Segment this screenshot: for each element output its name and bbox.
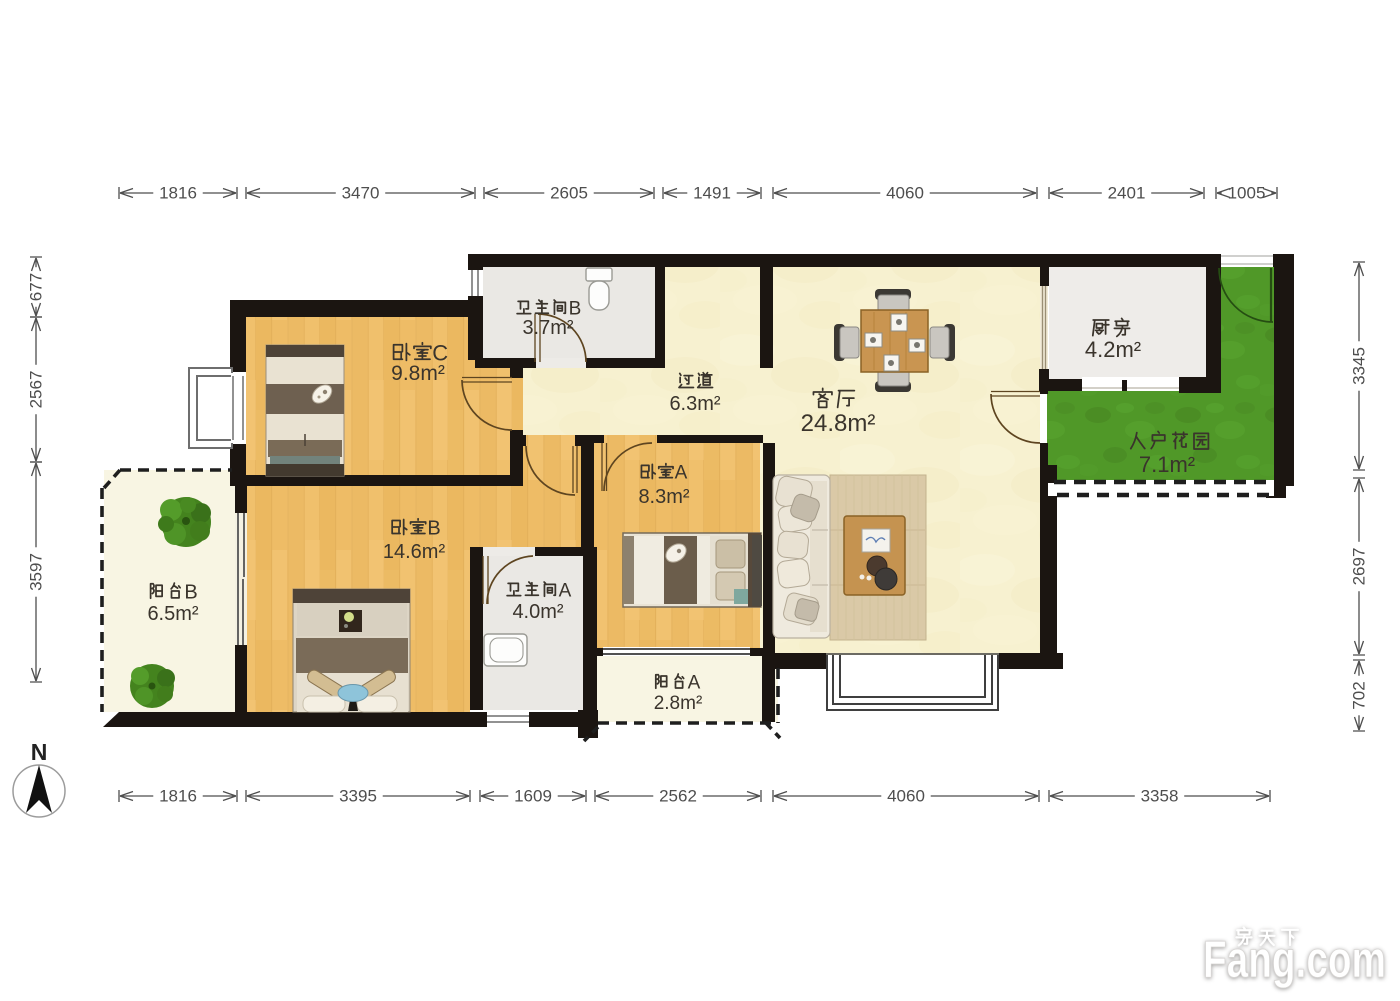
svg-text:3358: 3358	[1141, 787, 1179, 806]
svg-text:6.3m²: 6.3m²	[669, 393, 720, 415]
svg-text:702: 702	[1350, 681, 1369, 709]
svg-text:Fang.com: Fang.com	[1203, 931, 1386, 989]
svg-text:2.8m²: 2.8m²	[654, 693, 703, 714]
svg-text:A: A	[688, 673, 701, 694]
svg-text:A: A	[559, 581, 572, 602]
svg-text:8.3m²: 8.3m²	[638, 486, 689, 508]
svg-text:6.5m²: 6.5m²	[147, 603, 198, 625]
svg-text:4.2m²: 4.2m²	[1085, 337, 1141, 362]
svg-text:677: 677	[27, 273, 46, 301]
svg-text:3.7m²: 3.7m²	[522, 317, 573, 339]
svg-text:2562: 2562	[659, 787, 697, 806]
svg-text:1491: 1491	[693, 184, 731, 203]
svg-text:1816: 1816	[159, 184, 197, 203]
svg-text:B: B	[184, 582, 197, 604]
svg-text:3395: 3395	[339, 787, 377, 806]
svg-text:14.6m²: 14.6m²	[383, 541, 446, 563]
svg-text:7.1m²: 7.1m²	[1139, 452, 1195, 477]
svg-text:4060: 4060	[886, 184, 924, 203]
svg-text:3345: 3345	[1350, 347, 1369, 385]
svg-text:1609: 1609	[514, 787, 552, 806]
svg-text:N: N	[31, 739, 48, 765]
svg-text:4060: 4060	[887, 787, 925, 806]
svg-text:1816: 1816	[159, 787, 197, 806]
svg-text:4.0m²: 4.0m²	[512, 601, 563, 623]
svg-text:A: A	[675, 463, 688, 484]
svg-text:2567: 2567	[27, 371, 46, 409]
svg-text:24.8m²: 24.8m²	[801, 410, 876, 437]
svg-text:1005: 1005	[1228, 184, 1266, 203]
svg-text:3470: 3470	[342, 184, 380, 203]
svg-text:B: B	[427, 518, 440, 540]
svg-text:2605: 2605	[550, 184, 588, 203]
svg-text:2697: 2697	[1350, 548, 1369, 586]
svg-text:3597: 3597	[27, 553, 46, 591]
svg-text:9.8m²: 9.8m²	[391, 362, 445, 385]
svg-text:2401: 2401	[1108, 184, 1146, 203]
